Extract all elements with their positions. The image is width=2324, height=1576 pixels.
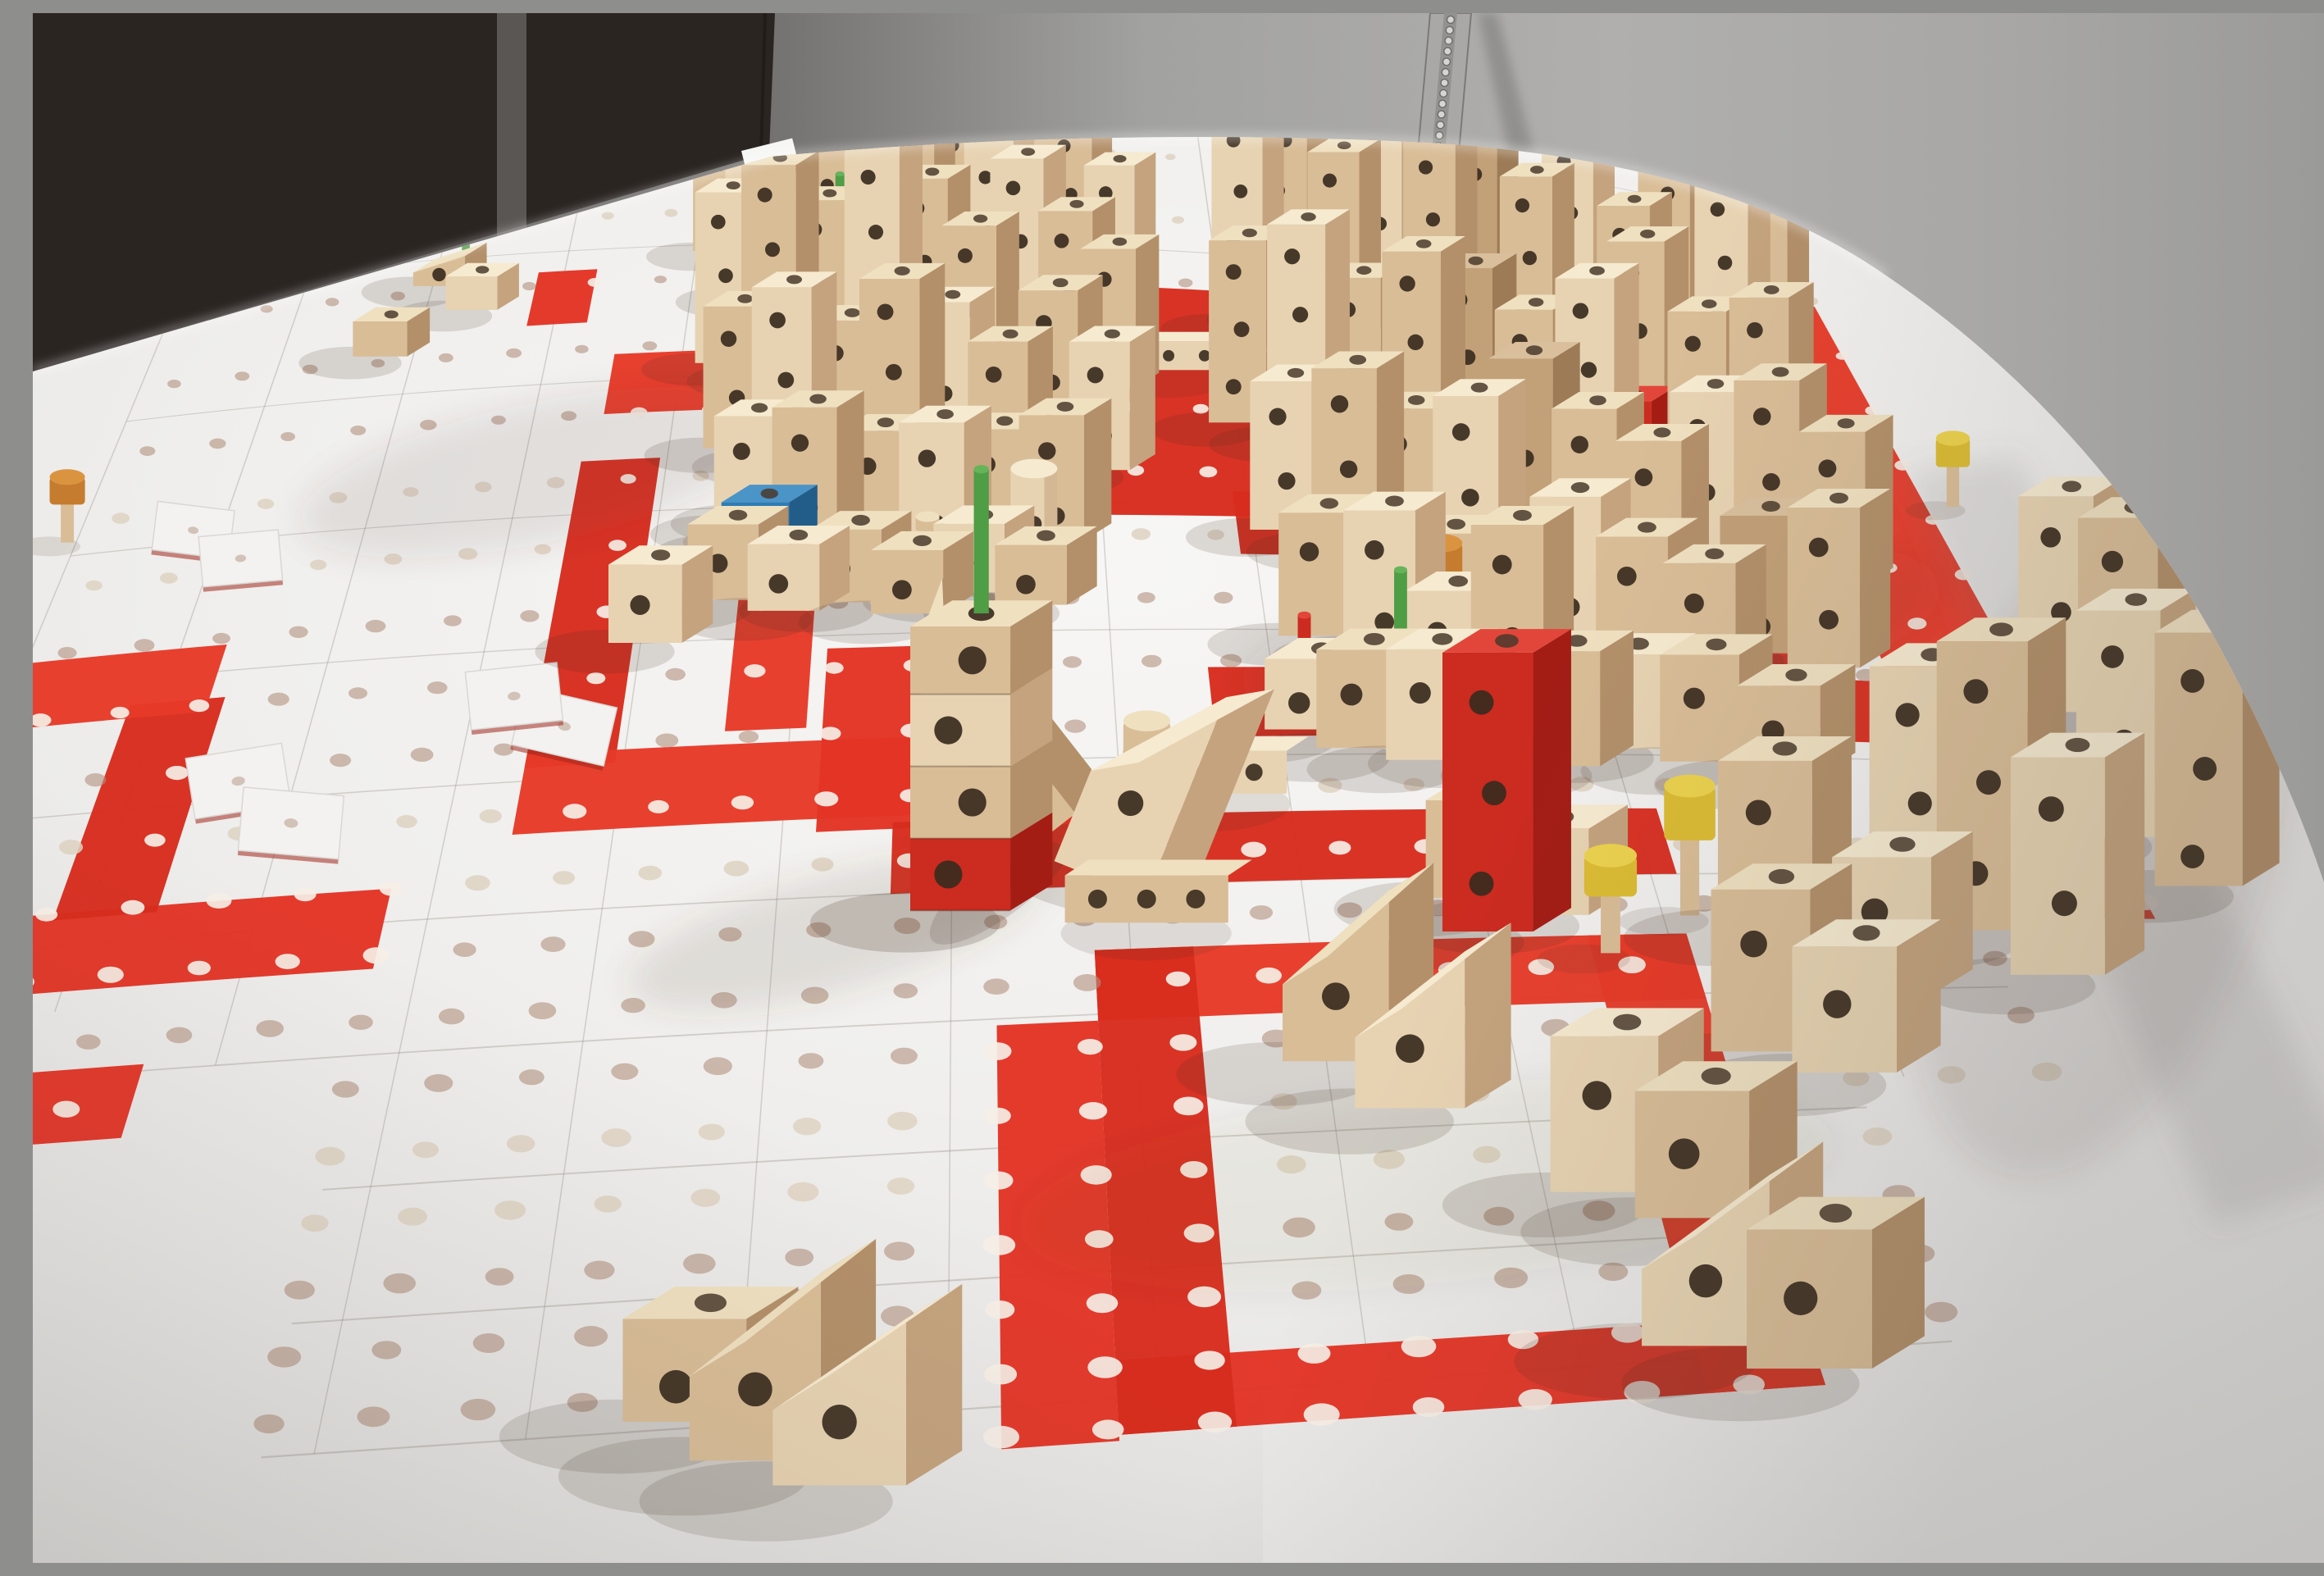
photo-wooden-city-model (33, 13, 2324, 1563)
scene-canvas (33, 13, 2324, 1563)
foreground-shading (33, 751, 1263, 1563)
